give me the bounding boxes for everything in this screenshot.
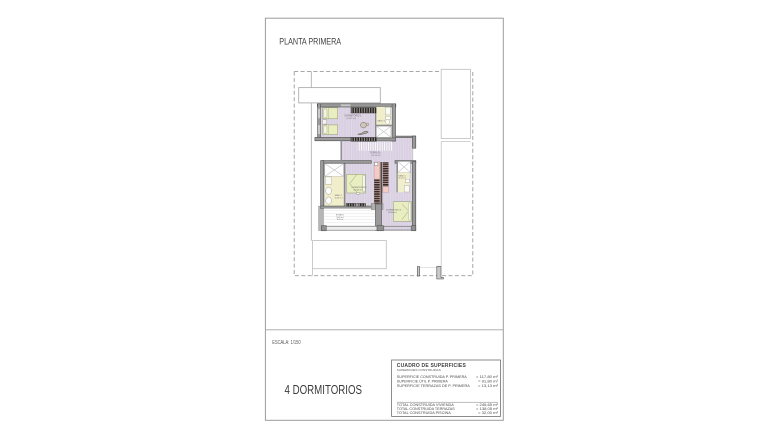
svg-text:(10,00 m²): (10,00 m²) [354,188,363,191]
svg-text:(14,35 m²): (14,35 m²) [346,117,356,120]
svg-text:4 DORMITORIOS: 4 DORMITORIOS [285,382,363,397]
svg-text:BAÑO 2: BAÑO 2 [378,119,386,122]
svg-text:= 91,80 m²: = 91,80 m² [478,380,499,384]
svg-text:8,00 m²: 8,00 m² [337,218,344,221]
svg-text:TOTAL CONSTRUIDA PISCINA: TOTAL CONSTRUIDA PISCINA [397,411,451,415]
svg-text:= 13,13 m²: = 13,13 m² [478,384,499,388]
svg-text:PLANTA PRIMERA: PLANTA PRIMERA [279,37,341,48]
svg-text:SUPERFICIE CONSTRUIDA P. PRIME: SUPERFICIE CONSTRUIDA P. PRIMERA [397,375,467,379]
svg-text:ESCALA: 1/150: ESCALA: 1/150 [272,340,301,346]
svg-text:SUPERFICIE TERRAZAS DE P. PRIM: SUPERFICIE TERRAZAS DE P. PRIMERA [397,384,470,388]
svg-text:= 117,80 m²: = 117,80 m² [476,375,499,379]
svg-text:SUPERFICIES CONSTRUIDAS: SUPERFICIES CONSTRUIDAS [397,368,441,372]
svg-text:(11,00 m²): (11,00 m²) [388,211,397,214]
svg-text:(5,30 m²): (5,30 m²) [335,196,343,199]
svg-text:(13,13 m²): (13,13 m²) [371,154,381,157]
svg-text:SUPERFICIE ÚTIL P. PRIMERA: SUPERFICIE ÚTIL P. PRIMERA [397,379,448,384]
svg-text:= 32,00 m²: = 32,00 m² [478,411,499,415]
svg-text:TERRAZA: TERRAZA [370,151,381,154]
